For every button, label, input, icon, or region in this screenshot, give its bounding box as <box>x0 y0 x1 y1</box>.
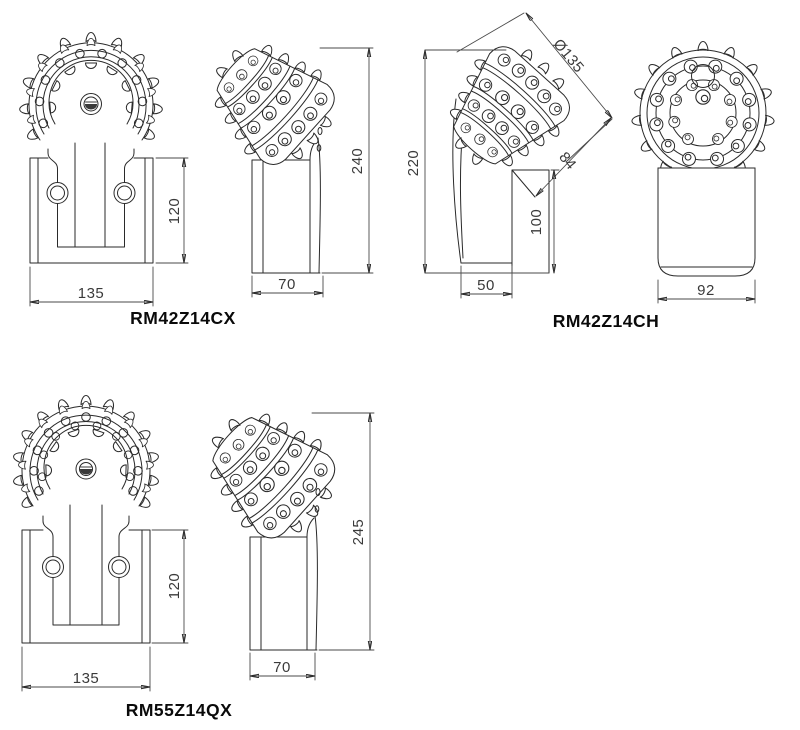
block-outline <box>22 530 150 643</box>
dim-width: 70 <box>273 659 291 676</box>
button-ring <box>631 42 774 175</box>
dim-holder-width: 50 <box>477 277 495 294</box>
rm55z14qx-side-view: 245 70 <box>181 385 374 680</box>
dim-width: 70 <box>278 276 296 293</box>
rm55z14qx-front-view: 135 120 <box>13 396 188 692</box>
cone-dome <box>19 33 162 142</box>
model-label-rm55z14qx: RM55Z14QX <box>126 700 233 720</box>
saddle-outline <box>43 505 129 625</box>
button-ring <box>19 33 162 142</box>
button-ring <box>26 38 156 124</box>
pin-detail <box>318 128 322 135</box>
dim-width: 135 <box>78 285 105 302</box>
dim-front-cx: 135 120 <box>30 158 188 306</box>
button-ring <box>667 78 738 147</box>
dim-height: 245 <box>350 519 367 546</box>
dim-face-ch: 92 <box>658 280 755 303</box>
model-label-rm42z14ch: RM42Z14CH <box>553 311 660 331</box>
rm42z14cx-side-view: 240 70 <box>186 17 373 297</box>
dim-height: 240 <box>349 148 366 175</box>
holder-body <box>658 168 755 276</box>
rm42z14ch-face-view: 92 <box>631 42 774 304</box>
technical-drawing-page: 135 120 240 70 RM42Z14CX 220 Ø135 <box>0 0 800 730</box>
button-ring <box>649 59 758 167</box>
rm42z14cx-front-view: 135 120 <box>19 33 188 307</box>
dim-height: 120 <box>166 198 183 225</box>
dim-front-qx: 135 120 <box>22 530 188 691</box>
rm42z14ch-angled-view: 220 Ø135 84 100 50 <box>405 13 612 298</box>
cone-dome <box>13 396 160 511</box>
dim-width: 135 <box>73 670 100 687</box>
dim-height: 120 <box>166 573 183 600</box>
dim-cone-diameter: Ø135 <box>549 36 587 77</box>
model-label-rm42z14cx: RM42Z14CX <box>130 308 236 328</box>
nozzle-hole <box>692 65 715 88</box>
drawing-canvas: 135 120 240 70 RM42Z14CX 220 Ø135 <box>0 0 800 730</box>
dim-width: 92 <box>697 282 715 299</box>
cone-face <box>631 42 774 177</box>
holder-body <box>250 516 317 650</box>
dim-overall-height: 220 <box>405 150 422 177</box>
dim-holder-height: 100 <box>528 209 545 236</box>
saddle-outline <box>48 143 134 247</box>
